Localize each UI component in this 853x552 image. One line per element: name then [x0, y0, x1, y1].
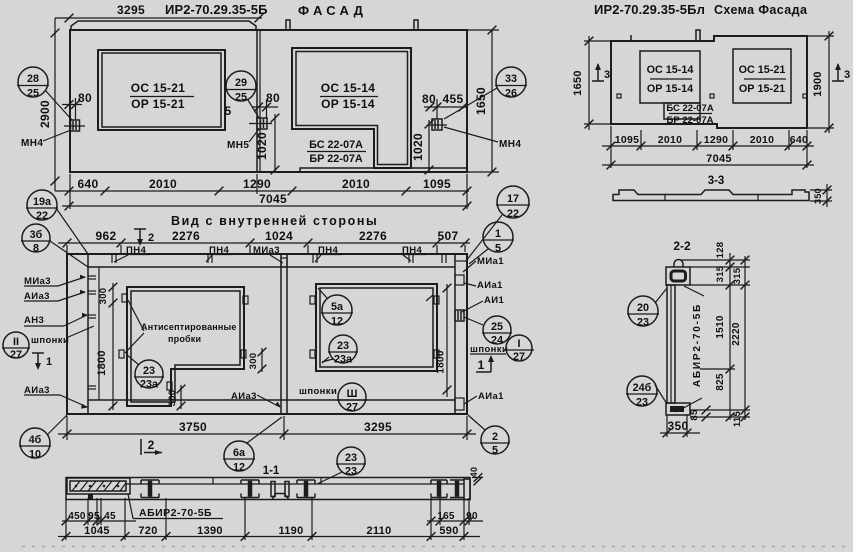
- svg-text:Вид с внутренней стороны: Вид с внутренней стороны: [171, 214, 378, 228]
- svg-text:455: 455: [443, 92, 464, 106]
- svg-text:БС 22-07А: БС 22-07А: [666, 103, 714, 114]
- svg-text:590: 590: [439, 525, 458, 537]
- svg-text:25: 25: [235, 92, 247, 104]
- svg-text:ФАСАД: ФАСАД: [298, 3, 367, 18]
- svg-text:26: 26: [505, 88, 517, 100]
- svg-text:шпонки: шпонки: [299, 386, 337, 397]
- svg-text:22: 22: [507, 208, 519, 220]
- svg-text:2110: 2110: [366, 525, 391, 537]
- svg-text:10: 10: [29, 449, 41, 461]
- svg-text:4б: 4б: [29, 434, 42, 446]
- svg-text:17: 17: [507, 193, 519, 205]
- svg-text:1390: 1390: [197, 525, 223, 537]
- svg-text:1800: 1800: [96, 350, 108, 376]
- svg-text:АИа3: АИа3: [231, 391, 257, 402]
- svg-text:2: 2: [148, 232, 154, 244]
- svg-text:1095: 1095: [615, 134, 640, 146]
- svg-text:825: 825: [715, 373, 726, 391]
- svg-text:1024: 1024: [265, 229, 293, 243]
- svg-text:350: 350: [668, 419, 689, 433]
- svg-text:3-3: 3-3: [708, 175, 725, 187]
- svg-text:МН4: МН4: [21, 138, 43, 149]
- svg-text:3: 3: [604, 69, 610, 81]
- svg-text:27: 27: [513, 351, 525, 363]
- svg-text:165: 165: [437, 511, 455, 522]
- svg-text:115: 115: [732, 410, 743, 427]
- svg-text:АБИР2-70-5Б: АБИР2-70-5Б: [692, 303, 703, 387]
- svg-text:23а: 23а: [334, 354, 353, 366]
- svg-text:шпонки: шпонки: [470, 344, 508, 355]
- svg-text:ИР2-70.29.35-5Бл: ИР2-70.29.35-5Бл: [594, 2, 705, 17]
- svg-text:БР 22-07А: БР 22-07А: [667, 115, 714, 126]
- svg-text:3б: 3б: [30, 229, 43, 241]
- svg-text:1290: 1290: [704, 134, 729, 146]
- svg-text:БС 22-07А: БС 22-07А: [309, 139, 363, 151]
- svg-text:ОР 15-14: ОР 15-14: [647, 83, 693, 95]
- svg-text:ОС 15-14: ОС 15-14: [321, 81, 375, 95]
- svg-text:24б: 24б: [633, 382, 652, 394]
- svg-text:3295: 3295: [117, 3, 145, 17]
- svg-text:2010: 2010: [149, 177, 177, 191]
- svg-text:28: 28: [27, 73, 39, 85]
- svg-text:5: 5: [495, 243, 501, 255]
- svg-text:5: 5: [492, 445, 498, 457]
- svg-text:2: 2: [148, 438, 155, 452]
- svg-text:25: 25: [491, 321, 503, 333]
- svg-text:ОР 15-14: ОР 15-14: [321, 97, 375, 111]
- svg-text:23: 23: [143, 365, 155, 377]
- svg-text:8: 8: [33, 243, 39, 255]
- svg-text:ОС 15-21: ОС 15-21: [739, 64, 786, 76]
- svg-text:2010: 2010: [658, 134, 683, 146]
- svg-text:3: 3: [844, 69, 850, 81]
- svg-text:1900: 1900: [812, 71, 824, 97]
- svg-text:1045: 1045: [84, 525, 110, 537]
- svg-text:БР 22-07А: БР 22-07А: [309, 153, 363, 165]
- svg-text:90: 90: [466, 511, 478, 522]
- svg-text:ИР2-70.29.35-5Б: ИР2-70.29.35-5Б: [165, 2, 268, 17]
- svg-text:640: 640: [78, 177, 99, 191]
- svg-text:640: 640: [790, 134, 808, 146]
- svg-text:1: 1: [495, 228, 501, 240]
- svg-text:6а: 6а: [233, 447, 246, 459]
- svg-text:МН5: МН5: [227, 140, 249, 151]
- svg-text:5а: 5а: [331, 301, 344, 313]
- svg-text:АБИР2-70-5Б: АБИР2-70-5Б: [139, 507, 212, 519]
- svg-text:АИа1: АИа1: [477, 280, 503, 291]
- svg-text:12: 12: [331, 316, 343, 328]
- svg-text:7045: 7045: [706, 153, 732, 165]
- svg-text:23: 23: [337, 340, 349, 352]
- svg-text:МИа1: МИа1: [477, 256, 504, 267]
- svg-text:шпонки: шпонки: [31, 335, 69, 346]
- svg-text:МН4: МН4: [499, 139, 521, 150]
- svg-text:128: 128: [715, 242, 726, 259]
- svg-text:23: 23: [636, 397, 648, 409]
- svg-text:МИа3: МИа3: [24, 276, 51, 287]
- svg-text:23: 23: [345, 452, 357, 464]
- svg-text:АИа1: АИа1: [478, 391, 504, 402]
- svg-text:Схема Фасада: Схема Фасада: [714, 3, 808, 17]
- svg-text:19а: 19а: [33, 196, 52, 208]
- svg-text:2-2: 2-2: [673, 239, 691, 253]
- svg-text:962: 962: [96, 229, 117, 243]
- svg-text:80: 80: [266, 91, 280, 105]
- svg-text:I: I: [518, 338, 521, 350]
- svg-text:1020: 1020: [411, 133, 425, 161]
- svg-text:27: 27: [10, 349, 22, 361]
- svg-text:300: 300: [167, 390, 178, 407]
- svg-text:ОР 15-21: ОР 15-21: [739, 83, 785, 95]
- svg-text:1650: 1650: [474, 87, 488, 115]
- svg-text:29: 29: [235, 77, 247, 89]
- svg-text:АН3: АН3: [24, 315, 44, 326]
- svg-text:350: 350: [813, 188, 823, 204]
- svg-text:40: 40: [469, 467, 479, 478]
- svg-text:95: 95: [88, 511, 100, 522]
- svg-text:АИа3: АИа3: [24, 291, 50, 302]
- svg-text:ОС 15-14: ОС 15-14: [647, 64, 694, 76]
- svg-text:23а: 23а: [140, 379, 159, 391]
- svg-text:1095: 1095: [423, 177, 451, 191]
- svg-text:1: 1: [478, 358, 485, 372]
- svg-text:20: 20: [637, 302, 649, 314]
- svg-text:2276: 2276: [359, 229, 387, 243]
- svg-text:ОР 15-21: ОР 15-21: [131, 97, 185, 111]
- svg-text:1800: 1800: [436, 350, 447, 374]
- svg-text:Антисептированные: Антисептированные: [141, 322, 237, 332]
- svg-text:АИ1: АИ1: [484, 295, 504, 306]
- svg-text:1: 1: [46, 356, 52, 368]
- svg-text:2010: 2010: [342, 177, 370, 191]
- svg-text:12: 12: [233, 462, 245, 474]
- svg-text:1650: 1650: [572, 70, 584, 96]
- svg-text:85: 85: [689, 409, 700, 421]
- svg-text:3295: 3295: [364, 420, 392, 434]
- svg-text:2: 2: [492, 431, 498, 443]
- svg-text:1020: 1020: [255, 132, 269, 160]
- svg-text:1190: 1190: [278, 525, 303, 537]
- svg-text:пробки: пробки: [168, 334, 201, 344]
- svg-text:1290: 1290: [243, 177, 271, 191]
- svg-text:2900: 2900: [38, 100, 52, 128]
- svg-text:315: 315: [732, 267, 743, 284]
- svg-text:II: II: [13, 336, 19, 348]
- svg-text:ОС 15-21: ОС 15-21: [131, 81, 185, 95]
- svg-text:7045: 7045: [259, 192, 287, 206]
- svg-text:2010: 2010: [750, 134, 775, 146]
- svg-text:22: 22: [36, 210, 48, 222]
- svg-text:315: 315: [715, 265, 726, 282]
- svg-text:5: 5: [225, 104, 232, 118]
- svg-text:507: 507: [438, 229, 459, 243]
- svg-text:27: 27: [346, 402, 358, 414]
- svg-text:2220: 2220: [731, 322, 742, 346]
- svg-text:300: 300: [98, 288, 109, 305]
- svg-text:450: 450: [68, 511, 86, 522]
- svg-text:25: 25: [27, 88, 39, 100]
- svg-text:720: 720: [138, 525, 157, 537]
- svg-text:2276: 2276: [172, 229, 200, 243]
- svg-text:Ш: Ш: [347, 388, 358, 400]
- svg-text:80: 80: [78, 91, 92, 105]
- svg-text:45: 45: [104, 511, 116, 522]
- svg-text:300: 300: [248, 353, 259, 370]
- svg-text:1510: 1510: [715, 315, 726, 339]
- svg-text:3750: 3750: [179, 420, 207, 434]
- svg-text:80: 80: [422, 92, 436, 106]
- svg-text:1-1: 1-1: [263, 465, 280, 477]
- svg-text:МИа3: МИа3: [253, 245, 280, 256]
- svg-text:33: 33: [505, 73, 517, 85]
- svg-text:АИа3: АИа3: [24, 385, 50, 396]
- svg-text:23: 23: [637, 317, 649, 329]
- svg-text:23: 23: [345, 466, 357, 478]
